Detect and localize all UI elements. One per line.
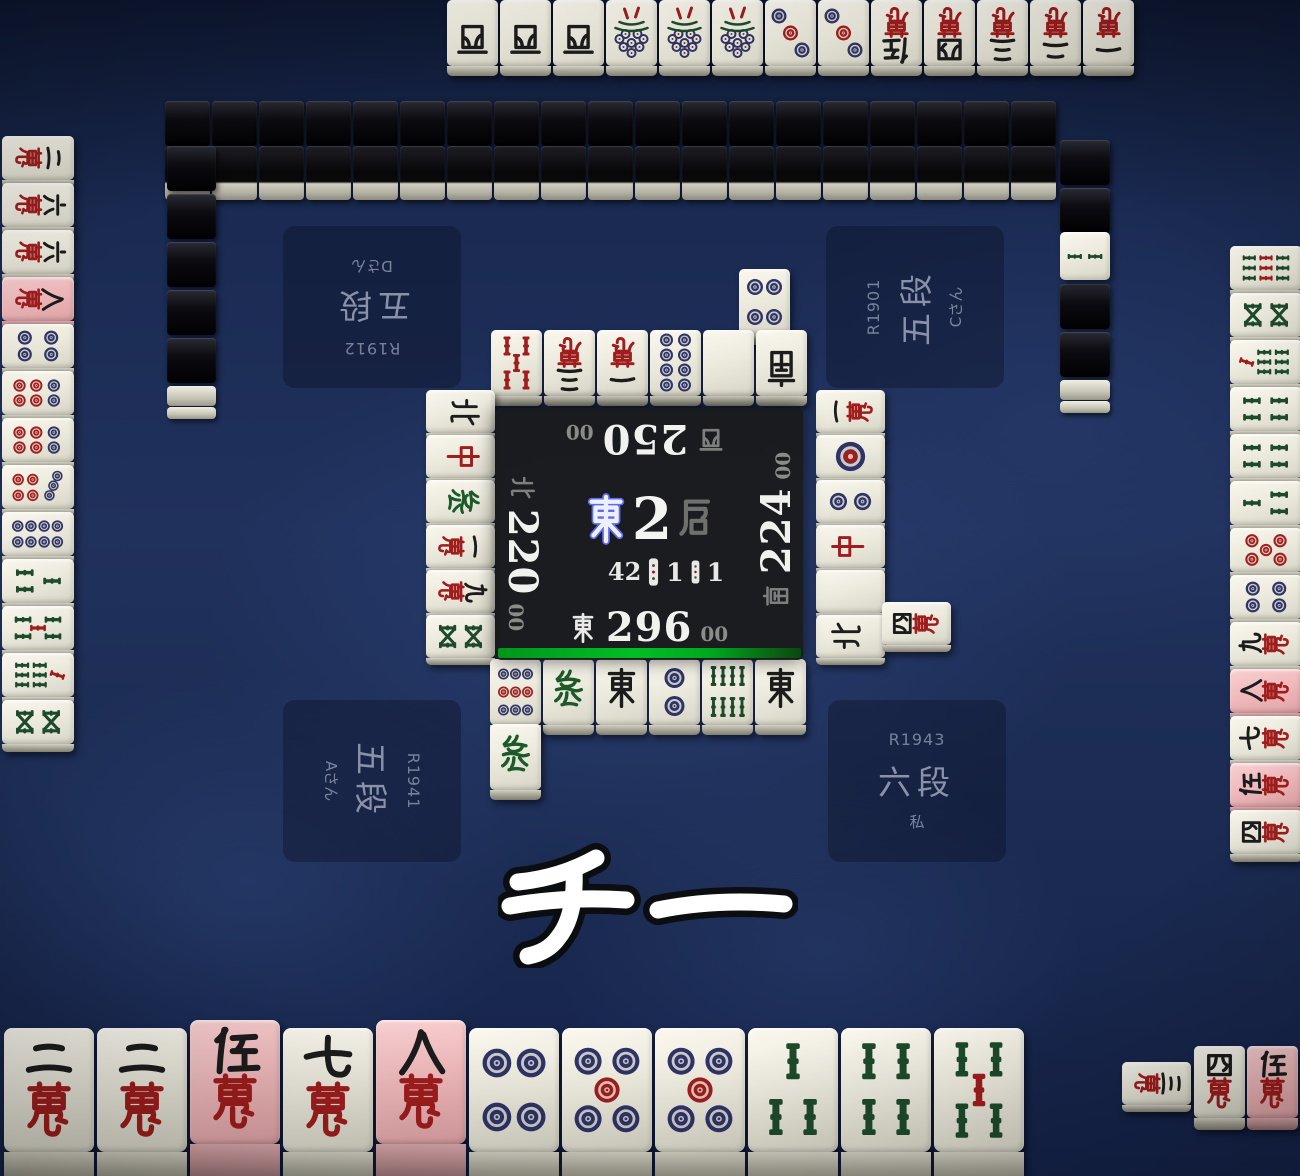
tile-glyph-p4 xyxy=(1230,575,1300,619)
tile-glyph-p6 xyxy=(2,418,74,462)
tile-s7 xyxy=(2,653,74,705)
wall-tile-back xyxy=(1060,284,1110,329)
wall-tile-back xyxy=(306,101,351,146)
wall-tile-back xyxy=(353,146,398,200)
tile-glyph-m3 xyxy=(977,0,1028,66)
tile-glyph-p2 xyxy=(649,659,700,725)
tile-glyph-p9 xyxy=(490,659,541,725)
tile-glyph-p3 xyxy=(818,0,869,66)
tile-p3 xyxy=(818,0,869,76)
wall-tile-back xyxy=(588,146,633,200)
tile-m1 xyxy=(597,330,648,406)
tile-p1 xyxy=(816,435,885,485)
tile-glyph-m4 xyxy=(882,602,951,645)
tile-s4 xyxy=(1230,434,1300,486)
tile-glyph-m5 xyxy=(1247,1046,1298,1118)
wall-tile-back xyxy=(823,101,868,146)
tile-m9 xyxy=(1230,622,1300,674)
player-rank: 五段 xyxy=(333,284,411,332)
tile-B xyxy=(816,570,885,620)
score-left: 220 00 xyxy=(496,457,548,647)
tile-glyph-p3 xyxy=(765,0,816,66)
center-info-panel: 250 00 220 00 224 00 296 00 2 42 1 xyxy=(496,408,803,660)
tile-glyph-m2 xyxy=(1030,0,1081,66)
tile-s6 xyxy=(2,700,74,752)
tile-glyph-s3 xyxy=(1230,481,1300,525)
tile-s3[interactable] xyxy=(748,1028,838,1176)
tile-glyph-p7 xyxy=(2,465,74,509)
tile-glyph-p4 xyxy=(469,1028,559,1152)
wall-tile-back xyxy=(212,101,257,146)
tile-W xyxy=(553,0,604,76)
tile-m7 xyxy=(1230,716,1300,768)
tile-C xyxy=(816,525,885,575)
tile-B xyxy=(703,330,754,406)
tile-p8 xyxy=(2,512,74,564)
tile-glyph-W xyxy=(553,0,604,66)
wall-tile-back xyxy=(165,101,210,146)
tile-glyph-s8 xyxy=(702,659,753,725)
tile-p5[interactable] xyxy=(562,1028,652,1176)
tile-glyph-m1 xyxy=(1083,0,1134,66)
wall-tile-back xyxy=(212,146,257,200)
tile-glyph-p6 xyxy=(2,371,74,415)
seat-wind-bottom-icon xyxy=(568,608,598,648)
tile-m1 xyxy=(1083,0,1134,76)
tiles-remaining: 42 xyxy=(608,560,641,584)
tile-s6 xyxy=(426,615,495,665)
player-name: Cさん xyxy=(945,287,966,327)
tile-p4[interactable] xyxy=(469,1028,559,1176)
wall-tile-back xyxy=(776,101,821,146)
wall-tile-back xyxy=(1060,140,1110,185)
wall-tile-back xyxy=(1060,188,1110,233)
tile-glyph-m6 xyxy=(2,230,74,274)
wall-tile-back xyxy=(1060,332,1110,377)
tile-glyph-p5 xyxy=(655,1028,745,1152)
tile-m1 xyxy=(816,390,885,440)
honba-stick-icon xyxy=(690,559,701,585)
tile-glyph-N xyxy=(816,615,885,658)
tile-glyph-m8 xyxy=(1230,669,1300,713)
tile-N xyxy=(816,615,885,665)
tile-glyph-H xyxy=(543,659,594,725)
wall-tile-back xyxy=(635,146,680,200)
tile-s7 xyxy=(1230,340,1300,392)
tile-p4 xyxy=(2,324,74,376)
tile-glyph-s1 xyxy=(712,0,763,66)
tile-m2 xyxy=(1030,0,1081,76)
tile-glyph-m4 xyxy=(1230,810,1300,854)
player-name: Dさん xyxy=(351,256,393,277)
tile-p7 xyxy=(2,465,74,517)
score-top-suffix: 00 xyxy=(566,422,594,442)
tile-s8 xyxy=(702,659,753,735)
tile-glyph-s6 xyxy=(1230,293,1300,337)
tile-glyph-m5 xyxy=(871,0,922,66)
tile-glyph-p4 xyxy=(739,269,790,335)
tile-s3 xyxy=(2,559,74,611)
wall-tile-back xyxy=(306,146,351,200)
tile-glyph-p8 xyxy=(650,330,701,396)
wall-end-edge xyxy=(1060,401,1110,413)
round-indicator: 2 xyxy=(566,480,736,558)
tile-H xyxy=(543,659,594,735)
tile-glyph-s5r xyxy=(491,330,542,396)
tile-m6 xyxy=(2,183,74,235)
tile-glyph-s3 xyxy=(2,559,74,603)
wall-end-edge xyxy=(1060,380,1110,400)
wall-tile-back xyxy=(400,146,445,200)
wall-tile-back xyxy=(729,101,774,146)
wall-tile-back xyxy=(682,101,727,146)
tile-glyph-s6 xyxy=(2,700,74,744)
tile-glyph-m7 xyxy=(283,1028,373,1152)
tile-glyph-S xyxy=(756,330,807,396)
player-plate-bottom-left: R1941 五段 Aさん xyxy=(283,700,461,862)
wall-tile-back xyxy=(400,101,445,146)
tile-glyph-s5 xyxy=(2,606,74,650)
wall-tile-back xyxy=(870,146,915,200)
wall-end-edge xyxy=(167,407,216,419)
tile-glyph-m1 xyxy=(597,330,648,396)
wall-tile-back xyxy=(964,101,1009,146)
player-plate-top-right: R1901 五段 Cさん xyxy=(826,226,1004,388)
tile-glyph-C xyxy=(816,525,885,568)
tile-glyph-s1 xyxy=(659,0,710,66)
riichi-stick-icon xyxy=(647,557,660,587)
tile-S xyxy=(756,330,807,406)
tile-m1 xyxy=(426,525,495,575)
player-plate-top-left: R1912 五段 Dさん xyxy=(283,226,461,388)
tile-glyph-H xyxy=(490,724,541,790)
tile-m9 xyxy=(426,570,495,620)
tile-m8-highlighted[interactable] xyxy=(376,1020,466,1176)
player-name: Aさん xyxy=(321,761,342,801)
wall-tile-back xyxy=(541,146,586,200)
wall-tile-back xyxy=(588,101,633,146)
tile-glyph-p0 xyxy=(1230,528,1300,572)
tile-glyph-m3 xyxy=(1122,1062,1191,1105)
player-id: R1941 xyxy=(404,753,423,810)
tile-glyph-s4 xyxy=(1230,387,1300,431)
tile-glyph-s7 xyxy=(2,653,74,697)
wall-tile-back xyxy=(1011,146,1056,200)
tile-m3 xyxy=(977,0,1028,76)
tile-m4 xyxy=(1230,810,1300,862)
honba-count: 1 xyxy=(707,560,724,585)
tile-glyph-s4 xyxy=(1230,434,1300,478)
tile-m6 xyxy=(2,230,74,282)
tile-p5[interactable] xyxy=(655,1028,745,1176)
tile-s5[interactable] xyxy=(934,1028,1024,1176)
wall-tile-back xyxy=(917,146,962,200)
sticks-row: 42 1 1 xyxy=(576,556,756,588)
tile-m3 xyxy=(1122,1062,1191,1112)
tile-glyph-m9 xyxy=(426,570,495,613)
wall-tile-back xyxy=(635,101,680,146)
tile-p0 xyxy=(1230,528,1300,580)
score-left-value: 220 xyxy=(502,509,542,596)
tile-m5-highlighted xyxy=(1230,763,1300,815)
tile-glyph-s9 xyxy=(1230,246,1300,290)
dora-indicator-glyph xyxy=(1063,240,1108,274)
tile-glyph-W xyxy=(447,0,498,66)
tile-m5 xyxy=(871,0,922,76)
tile-s1 xyxy=(712,0,763,76)
tile-m4 xyxy=(882,602,951,652)
tile-H xyxy=(426,480,495,530)
tile-s5r xyxy=(491,330,542,406)
tile-glyph-m1 xyxy=(426,525,495,568)
tile-glyph-B xyxy=(703,330,754,396)
wall-tile-back xyxy=(776,146,821,200)
tile-p3 xyxy=(765,0,816,76)
tile-glyph-E xyxy=(596,659,647,725)
score-left-suffix: 00 xyxy=(506,603,526,631)
tile-glyph-m4 xyxy=(1194,1046,1245,1118)
tile-m2[interactable] xyxy=(97,1028,187,1176)
wall-tile-back xyxy=(167,242,216,287)
wall-end-edge xyxy=(167,386,216,406)
tile-H xyxy=(490,724,541,800)
tile-glyph-W xyxy=(500,0,551,66)
tile-s6 xyxy=(1230,293,1300,345)
tile-s1 xyxy=(659,0,710,76)
tile-glyph-m2 xyxy=(2,136,74,180)
tile-glyph-m5 xyxy=(190,1020,280,1144)
tile-m2[interactable] xyxy=(4,1028,94,1176)
player-id: R1901 xyxy=(864,279,883,336)
tile-glyph-m7 xyxy=(1230,716,1300,760)
tile-p2 xyxy=(649,659,700,735)
score-right: 224 00 xyxy=(751,436,803,626)
score-top-value: 250 xyxy=(602,418,689,458)
wall-tile-back xyxy=(494,146,539,200)
score-bottom: 296 00 xyxy=(548,602,748,654)
wall-tile-back xyxy=(682,146,727,200)
tile-m5-highlighted xyxy=(1247,1046,1298,1130)
tile-glyph-m4 xyxy=(924,0,975,66)
tile-glyph-m8 xyxy=(376,1020,466,1144)
tile-glyph-m1 xyxy=(816,390,885,433)
round-number: 2 xyxy=(632,490,672,548)
tile-glyph-s6 xyxy=(426,615,495,658)
wall-tile-back xyxy=(353,101,398,146)
wall-tile-back xyxy=(541,101,586,146)
seat-wind-right-icon xyxy=(759,582,795,610)
tile-m8-highlighted xyxy=(1230,669,1300,721)
tile-glyph-p4 xyxy=(2,324,74,368)
score-right-suffix: 00 xyxy=(773,452,793,480)
wall-tile-back xyxy=(167,194,216,239)
tile-m4 xyxy=(1194,1046,1245,1130)
tile-p2 xyxy=(816,480,885,530)
tile-glyph-s4 xyxy=(841,1028,931,1152)
tile-glyph-s3 xyxy=(748,1028,838,1152)
wall-tile-back xyxy=(447,101,492,146)
dora-indicator-tile xyxy=(1060,232,1110,280)
tile-glyph-m2 xyxy=(4,1028,94,1152)
tile-glyph-m5 xyxy=(1230,763,1300,807)
tile-E xyxy=(755,659,806,735)
tile-W xyxy=(447,0,498,76)
wall-tile-back xyxy=(259,101,304,146)
wall-tile-back xyxy=(167,146,216,191)
tile-glyph-p8 xyxy=(2,512,74,556)
tile-C xyxy=(426,435,495,485)
tile-glyph-C xyxy=(426,435,495,478)
player-name: 私 xyxy=(909,811,924,832)
tile-glyph-p5 xyxy=(562,1028,652,1152)
tile-m8-highlighted xyxy=(2,277,74,329)
tile-m5-highlighted[interactable] xyxy=(190,1020,280,1176)
score-top: 250 00 xyxy=(551,412,741,464)
tile-glyph-m8 xyxy=(2,277,74,321)
wall-tile-back xyxy=(917,101,962,146)
mahjong-table: 250 00 220 00 224 00 296 00 2 42 1 xyxy=(0,0,1300,1176)
tile-p4 xyxy=(1230,575,1300,627)
wall-tile-back xyxy=(823,146,868,200)
tile-m3 xyxy=(544,330,595,406)
score-bottom-suffix: 00 xyxy=(700,624,728,644)
player-rank: 五段 xyxy=(349,742,397,820)
wall-tile-back xyxy=(167,338,216,383)
wall-tile-back xyxy=(259,146,304,200)
score-bottom-value: 296 xyxy=(606,608,693,648)
score-right-value: 224 xyxy=(757,488,797,575)
tile-glyph-s5 xyxy=(934,1028,1024,1152)
tile-p6 xyxy=(2,371,74,423)
tile-glyph-s1 xyxy=(606,0,657,66)
tile-s9 xyxy=(1230,246,1300,298)
tile-glyph-m9 xyxy=(1230,622,1300,666)
tile-glyph-m3 xyxy=(544,330,595,396)
wall-tile-back xyxy=(447,146,492,200)
tile-s4[interactable] xyxy=(841,1028,931,1176)
tile-glyph-p2 xyxy=(816,480,885,523)
wall-tile-back xyxy=(870,101,915,146)
round-wind-icon xyxy=(582,487,630,551)
round-suffix-icon xyxy=(674,490,720,548)
tile-glyph-H xyxy=(426,480,495,523)
tile-s5 xyxy=(2,606,74,658)
tile-s1 xyxy=(606,0,657,76)
wall-tile-back xyxy=(964,146,1009,200)
player-id: R1943 xyxy=(889,730,946,749)
tile-m2 xyxy=(2,136,74,188)
tile-N xyxy=(426,390,495,440)
tile-s4 xyxy=(1230,387,1300,439)
riichi-stick-count: 1 xyxy=(666,560,683,585)
player-id: R1912 xyxy=(344,339,401,358)
tile-glyph-s7 xyxy=(1230,340,1300,384)
seat-wind-top-icon xyxy=(696,419,726,457)
tile-p8 xyxy=(650,330,701,406)
wall-tile-back xyxy=(729,146,774,200)
player-plate-bottom-right: R1943 六段 私 xyxy=(828,700,1006,862)
tile-p6 xyxy=(2,418,74,470)
tile-glyph-p1 xyxy=(816,435,885,478)
tile-glyph-m2 xyxy=(97,1028,187,1152)
tile-glyph-N xyxy=(426,390,495,433)
tile-m7[interactable] xyxy=(283,1028,373,1176)
tile-glyph-E xyxy=(755,659,806,725)
seat-wind-left-icon xyxy=(504,473,540,501)
tile-E xyxy=(596,659,647,735)
tile-glyph-B xyxy=(816,570,885,613)
wall-tile-back xyxy=(167,290,216,335)
wall-tile-back xyxy=(494,101,539,146)
player-rank: 六段 xyxy=(878,756,956,804)
tile-glyph-m6 xyxy=(2,183,74,227)
tile-W xyxy=(500,0,551,76)
call-banner-chii xyxy=(498,836,798,968)
tile-m4 xyxy=(924,0,975,76)
wall-tile-back xyxy=(1011,101,1056,146)
player-rank: 五段 xyxy=(890,268,938,346)
active-turn-bar xyxy=(498,648,801,658)
tile-s3 xyxy=(1230,481,1300,533)
